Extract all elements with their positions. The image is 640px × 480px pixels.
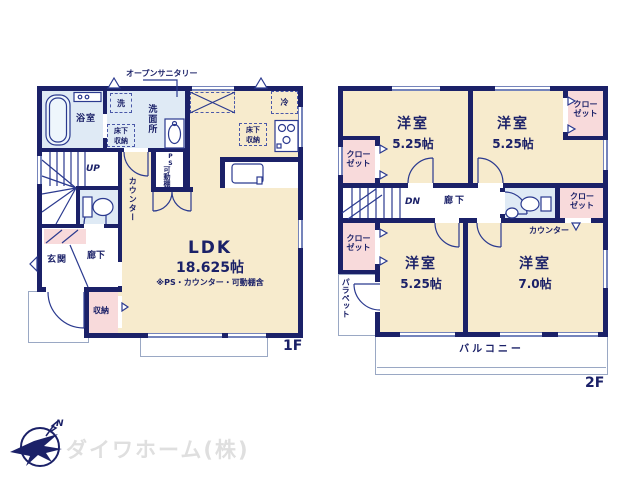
stairs-run-1f xyxy=(42,152,122,186)
window xyxy=(298,107,303,147)
wall xyxy=(42,224,122,228)
kitchen-counter xyxy=(220,157,298,188)
stairs-winder-1f xyxy=(42,186,76,224)
balcony-rail-line xyxy=(377,367,606,368)
fridge-box: 冷 xyxy=(271,91,298,114)
label-bedroom4-name: 洋室 xyxy=(480,256,590,272)
underfloor-storage-label: 床下収納 xyxy=(114,126,129,146)
window xyxy=(392,86,440,91)
company-logo: N xyxy=(10,419,64,466)
underfloor-storage-washroom: 床下収納 xyxy=(107,124,135,147)
north-label: N xyxy=(56,419,64,429)
window xyxy=(603,250,608,288)
door-opening xyxy=(435,218,459,223)
label-open-sanitary: オープンサニタリー xyxy=(126,69,198,78)
washer-label: 洗 xyxy=(117,98,125,109)
label-bedroom3-name: 洋室 xyxy=(366,256,476,272)
window xyxy=(558,332,598,337)
wall xyxy=(603,86,608,337)
wall xyxy=(42,148,190,152)
wall xyxy=(37,86,42,292)
porch xyxy=(28,291,89,343)
label-bedroom1-size: 5.25帖 xyxy=(358,138,468,152)
north-arrow-icon xyxy=(46,421,58,436)
wall xyxy=(338,86,343,274)
label-pipe-space: PS xyxy=(166,153,173,167)
wall xyxy=(151,187,193,192)
door-opening xyxy=(118,262,122,286)
label-stairs-down: DN xyxy=(405,197,420,207)
underfloor-storage-label: 床下収納 xyxy=(246,125,261,145)
label-closet-mid-right: クローゼット xyxy=(567,192,597,210)
wall xyxy=(84,292,89,338)
wall xyxy=(37,86,303,91)
wall xyxy=(563,136,603,140)
fridge-label: 冷 xyxy=(281,97,289,108)
label-washroom: 洗面所 xyxy=(146,104,156,144)
label-movable-shelf: 可動棚 xyxy=(163,166,171,188)
terrace xyxy=(140,338,268,357)
window xyxy=(603,140,608,170)
window xyxy=(37,156,42,184)
window xyxy=(500,332,542,337)
wall xyxy=(555,188,560,218)
label-stairs-up: UP xyxy=(86,164,100,174)
label-bedroom2-size: 5.25帖 xyxy=(458,138,568,152)
logo-circle xyxy=(21,428,59,466)
label-counter-1f: カウンター xyxy=(128,177,137,227)
window xyxy=(298,220,303,248)
label-ldk-size: 18.625帖 xyxy=(150,260,270,276)
door-opening xyxy=(118,296,122,328)
window xyxy=(228,333,266,338)
wall xyxy=(183,148,190,192)
underfloor-storage-kitchen: 床下収納 xyxy=(239,123,267,146)
label-balcony: バルコニー xyxy=(375,344,608,356)
wall xyxy=(185,91,190,148)
door-opening xyxy=(84,224,104,228)
label-floor-2f: 2F xyxy=(585,375,604,391)
door-opening xyxy=(477,218,501,223)
label-bedroom1-name: 洋室 xyxy=(358,116,468,132)
window xyxy=(148,333,222,338)
label-ldk-note: ※PS・カウンター・可動棚含 xyxy=(140,278,280,287)
window xyxy=(338,147,343,175)
room-toilet-2f xyxy=(505,188,555,218)
label-bath: 浴室 xyxy=(66,114,106,124)
bird-icon xyxy=(10,434,62,466)
label-closet-top-right: クローゼット xyxy=(571,100,600,118)
label-entrance: 玄関 xyxy=(47,255,67,265)
ceiling-storage-box xyxy=(190,92,235,113)
label-closet-mid-left: クローゼット xyxy=(344,150,373,168)
wall xyxy=(76,186,80,228)
wall xyxy=(343,183,603,188)
label-bedroom2-name: 洋室 xyxy=(458,116,568,132)
door-opening xyxy=(124,148,148,152)
floorplan-canvas: 洗 床下収納 冷 床下収納 xyxy=(0,0,640,480)
label-closet-bottom-left: クローゼット xyxy=(344,234,373,252)
window xyxy=(192,86,234,91)
door-opening xyxy=(478,183,503,188)
door-opening xyxy=(500,192,505,214)
label-hallway-1f: 廊下 xyxy=(87,251,105,261)
label-storage-1f: 収納 xyxy=(93,306,109,315)
label-bedroom3-size: 5.25帖 xyxy=(366,278,476,292)
door-opening xyxy=(565,218,591,223)
entrance-marker xyxy=(30,257,37,271)
wall xyxy=(343,218,603,223)
company-name: ダイワホーム(株) xyxy=(66,434,250,464)
label-floor-1f: 1F xyxy=(283,338,302,354)
window xyxy=(400,332,455,337)
label-bedroom4-size: 7.0帖 xyxy=(480,278,590,292)
door-opening xyxy=(408,183,433,188)
washer-box: 洗 xyxy=(110,93,132,113)
wall xyxy=(151,148,156,192)
wall xyxy=(76,186,122,190)
shoe-cabinet xyxy=(44,229,86,244)
label-counter-2f: カウンター xyxy=(529,226,569,235)
window xyxy=(495,86,550,91)
door-opening xyxy=(46,287,84,292)
label-ldk-name: LDK xyxy=(150,239,270,259)
label-hallway-2f: 廊下 xyxy=(444,196,466,206)
label-parapet: パラペット xyxy=(341,278,350,326)
balcony xyxy=(375,337,608,375)
room-toilet-1f xyxy=(80,190,118,224)
